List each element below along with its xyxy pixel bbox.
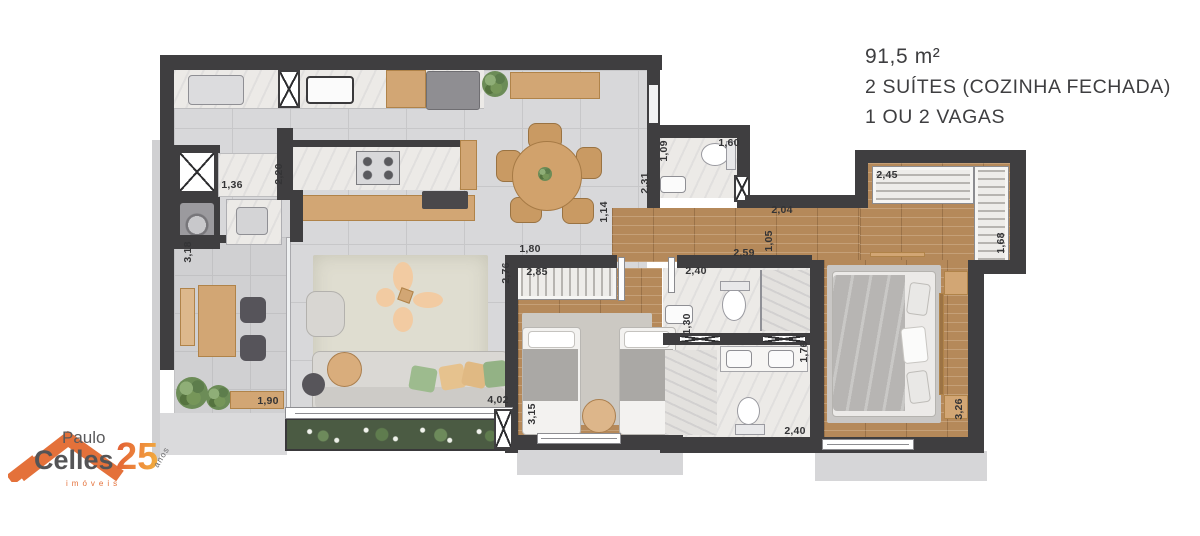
dimension-label: 3,15 [526, 403, 538, 424]
dimension-label: 2,04 [771, 204, 792, 216]
dimension-label: 2,59 [733, 247, 754, 259]
balcony-slab-left [152, 140, 160, 460]
dimension-label: 3,26 [953, 398, 965, 419]
dimension-label: 1,76 [798, 341, 810, 362]
dimension-label: 1,68 [995, 232, 1007, 253]
dimension-label: 1,30 [681, 313, 693, 334]
floorplan-page: 91,5 m² 2 SUÍTES (COZINHA FECHADA) 1 OU … [0, 0, 1200, 536]
dimension-label: 1,14 [598, 201, 610, 222]
dimension-label: 4,02 [487, 394, 508, 406]
dimension-label: 2,76 [500, 262, 512, 283]
dimension-label: 1,05 [763, 230, 775, 251]
dimension-label: 2,20 [273, 163, 285, 184]
dimension-label: 1,80 [519, 243, 540, 255]
dimension-labels: 1,362,203,181,902,761,802,854,023,151,14… [160, 55, 1040, 485]
dimension-label: 3,18 [182, 241, 194, 262]
logo-years: 25 [116, 436, 158, 479]
dimension-label: 2,40 [685, 265, 706, 277]
dimension-label: 1,36 [221, 179, 242, 191]
dimension-label: 1,60 [718, 137, 739, 149]
dimension-label: 2,31 [639, 172, 651, 193]
logo-last-name: Celles [34, 445, 114, 476]
dimension-label: 2,85 [526, 266, 547, 278]
logo-tagline: imóveis [66, 479, 121, 488]
dimension-label: 2,45 [876, 169, 897, 181]
dimension-label: 1,90 [257, 395, 278, 407]
brand-logo: Paulo Celles imóveis 25 anos [8, 424, 183, 504]
dimension-label: 1,09 [658, 140, 670, 161]
floor-plan: 1,362,203,181,902,761,802,854,023,151,14… [160, 55, 1040, 485]
dimension-label: 2,40 [784, 425, 805, 437]
